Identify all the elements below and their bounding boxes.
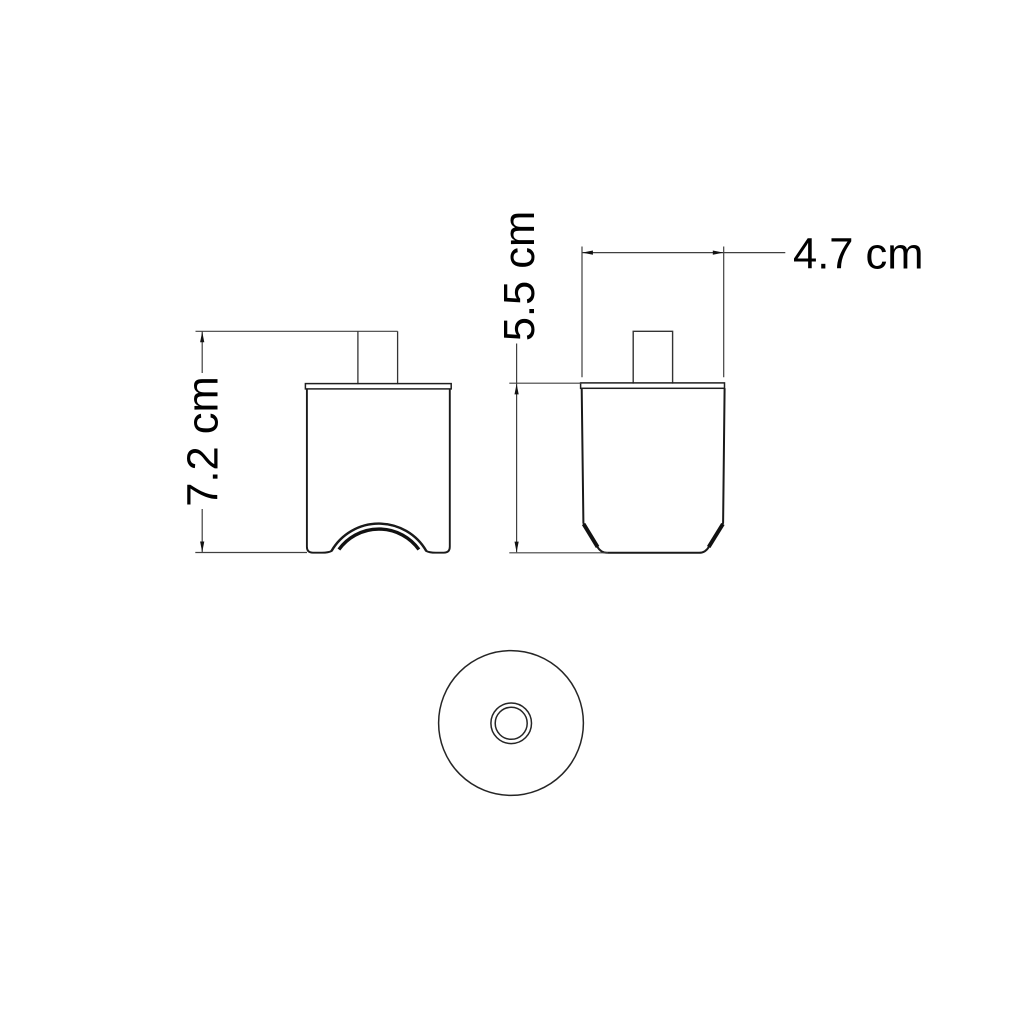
svg-text:5.5 cm: 5.5 cm [496,211,544,342]
svg-text:4.7 cm: 4.7 cm [793,231,924,279]
svg-text:7.2 cm: 7.2 cm [180,376,228,507]
